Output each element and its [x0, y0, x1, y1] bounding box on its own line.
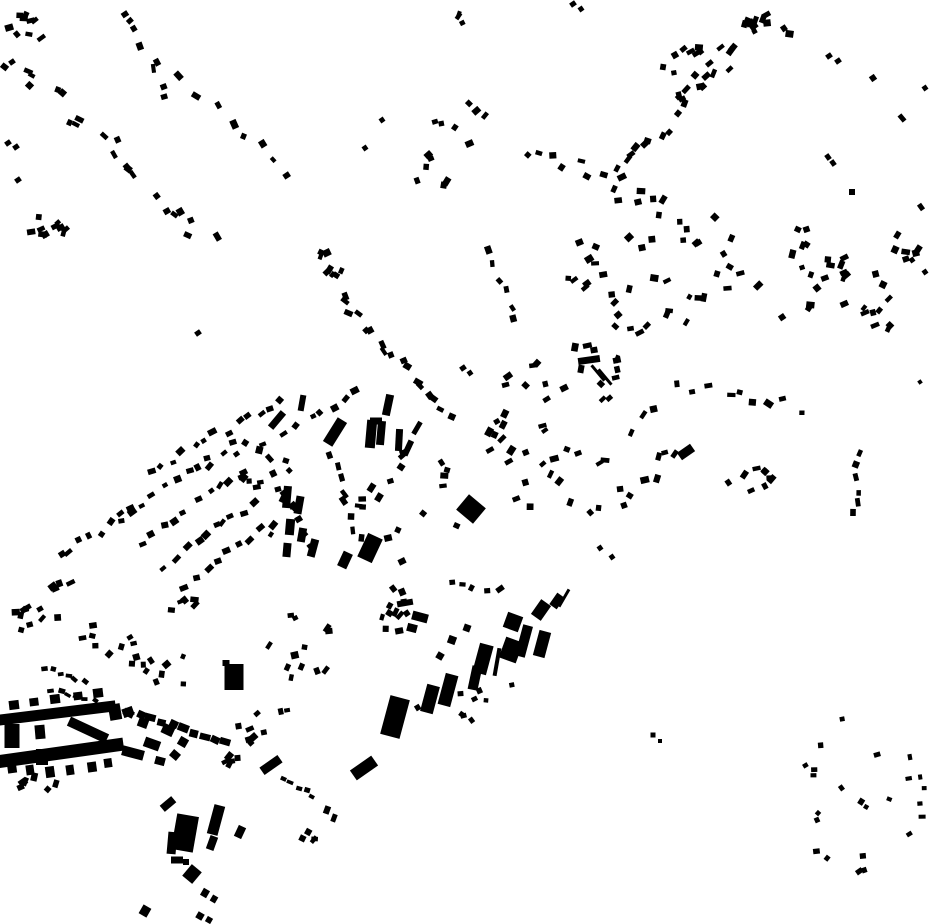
building-footprint	[614, 366, 621, 374]
building-footprint	[723, 286, 732, 291]
building-footprint	[282, 457, 289, 464]
building-footprint	[592, 243, 601, 251]
building-footprint	[665, 128, 673, 136]
building-footprint	[586, 509, 594, 517]
building-footprint	[191, 91, 201, 100]
building-footprint	[221, 546, 231, 555]
building-footprint	[870, 322, 880, 329]
building-footprint	[704, 383, 713, 389]
building-footprint	[467, 370, 474, 377]
building-footprint	[210, 894, 219, 903]
building-footprint	[435, 651, 445, 661]
building-footprint	[663, 277, 672, 284]
building-footprint	[180, 653, 186, 659]
building-footprint	[863, 804, 869, 810]
building-footprint	[681, 84, 691, 94]
building-footprint	[481, 111, 489, 120]
building-footprint	[922, 269, 929, 276]
building-footprint	[611, 322, 619, 330]
building-footprint	[557, 163, 566, 172]
building-footprint	[156, 463, 163, 470]
building-footprint	[181, 681, 187, 686]
building-footprint	[38, 231, 47, 238]
building-footprint	[716, 44, 725, 52]
building-footprint	[107, 517, 116, 526]
building-footprint	[484, 588, 490, 594]
building-footprint	[438, 458, 446, 466]
building-footprint	[463, 624, 472, 633]
building-footprint	[126, 17, 134, 25]
building-footprint	[642, 321, 651, 330]
building-footprint	[173, 70, 184, 81]
building-footprint	[720, 250, 728, 258]
building-footprint	[824, 256, 831, 263]
building-footprint	[549, 455, 559, 463]
building-footprint	[65, 764, 74, 775]
building-footprint	[471, 106, 481, 116]
building-footprint	[690, 71, 699, 80]
building-footprint	[457, 691, 463, 697]
building-footprint	[617, 486, 624, 493]
building-footprint	[547, 470, 554, 479]
building-footprint	[857, 797, 865, 805]
building-footprint	[265, 641, 273, 650]
building-footprint	[177, 722, 190, 733]
building-footprint	[637, 188, 646, 195]
building-footprint	[268, 520, 278, 531]
building-footprint	[286, 467, 293, 474]
building-footprint	[677, 444, 695, 461]
building-footprint	[917, 801, 923, 806]
building-footprint	[100, 131, 109, 140]
building-footprint	[451, 123, 459, 131]
building-footprint	[447, 412, 456, 421]
building-footprint	[459, 364, 467, 372]
building-footprint	[203, 455, 211, 462]
building-footprint	[179, 584, 189, 592]
building-footprint	[500, 409, 509, 419]
building-footprint	[563, 446, 571, 453]
building-footprint	[161, 659, 171, 669]
building-footprint	[25, 31, 33, 37]
building-footprint	[569, 0, 577, 8]
building-footprint	[0, 62, 9, 71]
building-footprint	[423, 164, 429, 171]
building-footprint	[571, 343, 579, 352]
building-footprint	[36, 749, 48, 765]
building-footprint	[917, 203, 925, 212]
building-footprint	[694, 295, 702, 301]
building-footprint	[736, 389, 743, 395]
building-footprint	[108, 703, 123, 721]
building-footprint	[187, 217, 195, 225]
building-footprint	[387, 478, 394, 485]
building-footprint	[386, 602, 394, 610]
building-footprint	[322, 248, 332, 258]
building-footprint	[542, 395, 551, 403]
building-footprint	[860, 853, 867, 859]
building-footprint	[806, 301, 815, 308]
building-footprint	[348, 513, 355, 520]
building-footprint	[394, 526, 401, 533]
building-footprint	[470, 678, 475, 684]
building-footprint	[47, 688, 54, 693]
building-footprint	[778, 313, 787, 321]
building-footprint	[385, 609, 394, 617]
building-footprint	[611, 375, 619, 381]
building-footprint	[258, 139, 267, 149]
building-footprint	[14, 176, 22, 184]
building-footprint	[374, 492, 384, 502]
building-footprint	[509, 682, 515, 688]
building-footprint	[596, 505, 602, 511]
building-footprint	[869, 309, 876, 316]
building-footprint	[325, 628, 333, 635]
building-footprint	[650, 195, 657, 202]
building-footprint	[653, 474, 661, 484]
building-footprint	[268, 410, 286, 430]
building-footprint	[574, 450, 582, 457]
building-footprint	[26, 621, 33, 628]
building-footprint	[559, 384, 569, 393]
building-footprint	[837, 260, 845, 270]
building-footprint	[761, 482, 769, 490]
building-footprint	[204, 563, 214, 573]
building-footprint	[130, 25, 138, 33]
building-footprint	[649, 405, 657, 413]
building-footprint	[161, 521, 169, 528]
building-footprint	[282, 171, 291, 179]
building-footprint	[49, 694, 60, 704]
building-footprint	[175, 446, 185, 456]
building-footprint	[810, 773, 816, 777]
building-footprint	[749, 399, 757, 406]
building-footprint	[674, 109, 682, 117]
building-footprint	[284, 663, 291, 671]
building-footprint	[411, 421, 422, 436]
building-footprint	[918, 774, 923, 780]
building-footprint	[565, 276, 571, 281]
building-footprint	[138, 503, 145, 509]
building-footprint	[811, 767, 817, 772]
building-footprint	[389, 584, 398, 593]
building-footprint	[665, 308, 673, 313]
building-footprint	[8, 58, 16, 66]
building-footprint	[193, 574, 201, 581]
building-footprint	[179, 509, 187, 516]
building-footprint	[907, 754, 912, 761]
building-footprint	[129, 661, 135, 667]
building-footprint	[338, 473, 345, 482]
building-footprint	[41, 666, 48, 671]
building-footprint	[74, 536, 82, 544]
building-footprint	[370, 418, 382, 425]
building-footprint	[533, 630, 551, 658]
building-footprint	[820, 274, 829, 282]
building-footprint	[235, 540, 243, 548]
building-footprint	[16, 12, 23, 18]
building-footprint	[207, 804, 225, 836]
building-footprint	[275, 396, 284, 405]
building-footprint	[210, 735, 221, 745]
building-footprint	[81, 678, 89, 686]
building-footprint	[139, 541, 147, 548]
building-footprint	[265, 453, 274, 463]
building-footprint	[229, 119, 239, 130]
building-footprint	[736, 270, 745, 277]
building-footprint	[29, 697, 39, 706]
building-footprint	[67, 717, 109, 744]
building-footprint	[420, 684, 440, 714]
building-footprint	[524, 151, 532, 159]
building-footprint	[245, 725, 254, 733]
building-footprint	[853, 473, 860, 482]
building-footprint	[170, 460, 177, 466]
building-footprint	[725, 263, 734, 271]
building-footprint	[259, 755, 282, 775]
building-footprint	[256, 523, 266, 533]
building-footprint	[468, 584, 475, 592]
map-viewport	[0, 0, 930, 924]
building-footprint	[785, 30, 794, 38]
building-footprint	[147, 656, 155, 665]
building-footprint	[153, 192, 161, 200]
building-footprint	[259, 441, 267, 447]
building-footprint	[34, 725, 45, 740]
building-footprint	[98, 530, 106, 538]
building-footprint	[362, 145, 369, 152]
building-footprint	[869, 74, 877, 82]
building-footprint	[130, 641, 137, 647]
building-footprint	[724, 479, 732, 487]
building-footprint	[379, 117, 386, 124]
building-footprint	[298, 834, 306, 842]
building-footprint	[358, 534, 364, 542]
building-footprint	[499, 420, 508, 430]
building-footprint	[301, 644, 307, 650]
building-footprint	[684, 226, 690, 233]
building-footprint	[384, 534, 393, 542]
building-footprint	[493, 648, 502, 676]
building-footprint	[893, 231, 901, 240]
building-footprint	[626, 492, 634, 500]
building-footprint	[628, 429, 635, 437]
building-footprint	[453, 522, 461, 529]
building-footprint	[25, 81, 34, 90]
building-footprint	[216, 481, 224, 490]
building-footprint	[590, 346, 598, 353]
building-footprint	[103, 758, 112, 768]
building-footprint	[799, 265, 805, 271]
building-footprint	[341, 394, 350, 403]
building-footprint	[350, 526, 355, 534]
building-footprint	[406, 623, 418, 633]
building-footprint	[270, 156, 277, 163]
building-footprint	[199, 732, 211, 741]
building-footprint-map	[0, 0, 930, 924]
building-footprint	[447, 635, 457, 645]
building-footprint	[214, 101, 222, 109]
building-footprint	[484, 698, 489, 703]
building-footprint	[266, 405, 274, 412]
building-footprint	[689, 389, 696, 395]
building-footprint	[160, 93, 168, 100]
building-footprint	[496, 277, 504, 285]
building-footprint	[58, 672, 64, 676]
building-footprint	[763, 398, 774, 409]
building-footprint	[153, 678, 160, 686]
building-footprint	[829, 159, 837, 167]
building-footprint	[323, 805, 331, 815]
building-footprint	[814, 817, 821, 824]
building-footprint	[8, 700, 19, 710]
building-footprint	[121, 10, 130, 18]
building-footprint	[288, 674, 294, 681]
building-footprint	[512, 495, 521, 502]
building-footprint	[803, 226, 811, 234]
building-footprint	[686, 294, 692, 301]
building-footprint	[65, 674, 72, 679]
building-footprint	[658, 739, 662, 743]
building-footprint	[875, 306, 883, 314]
building-footprint	[234, 755, 240, 761]
building-footprint	[219, 737, 231, 747]
building-footprint	[753, 280, 764, 291]
building-footprint	[110, 150, 118, 159]
building-footprint	[226, 513, 234, 520]
building-footprint	[599, 395, 607, 403]
building-footprint	[359, 504, 366, 510]
building-footprint	[66, 119, 73, 126]
building-footprint	[200, 438, 207, 445]
building-footprint	[291, 421, 300, 430]
building-footprint	[860, 309, 870, 316]
building-footprint	[459, 20, 466, 26]
building-footprint	[651, 733, 656, 738]
building-footprint	[338, 267, 345, 274]
building-footprint	[78, 635, 86, 641]
building-footprint	[92, 643, 98, 649]
building-footprint	[468, 717, 475, 724]
building-footprint	[449, 579, 455, 585]
building-footprint	[146, 530, 155, 539]
building-footprint	[229, 439, 237, 446]
building-footprint	[849, 189, 855, 195]
building-footprint	[253, 710, 261, 718]
building-footprint	[142, 667, 149, 675]
building-footprint	[752, 465, 761, 471]
building-footprint	[506, 445, 517, 456]
building-footprint	[852, 460, 860, 469]
building-footprint	[597, 545, 604, 552]
building-footprint	[158, 670, 164, 678]
building-footprint	[761, 467, 770, 476]
building-footprint	[395, 429, 403, 451]
building-footprint	[484, 245, 493, 255]
building-footprint	[213, 231, 222, 241]
building-footprint	[326, 451, 334, 459]
building-footprint	[12, 143, 20, 151]
building-footprint	[779, 396, 787, 402]
building-footprint	[439, 483, 447, 488]
building-footprint	[167, 832, 178, 855]
building-footprint	[529, 363, 537, 369]
building-footprint	[818, 742, 824, 748]
building-footprint	[7, 762, 17, 773]
building-footprint	[527, 503, 534, 510]
building-footprint	[383, 626, 389, 632]
building-footprint	[638, 244, 646, 252]
building-footprint	[136, 42, 145, 51]
building-footprint	[634, 198, 642, 206]
building-footprint	[58, 688, 66, 695]
building-footprint	[531, 599, 551, 621]
building-footprint	[304, 828, 312, 837]
building-footprint	[147, 491, 156, 499]
building-footprint	[172, 554, 182, 564]
page-root: { "meta": { "title": "building-footprint…	[0, 0, 930, 924]
building-footprint	[656, 211, 662, 218]
building-footprint	[240, 510, 249, 517]
building-footprint	[193, 441, 200, 448]
building-footprint	[566, 498, 574, 507]
building-footprint	[260, 729, 267, 735]
building-footprint	[902, 255, 910, 263]
building-footprint	[919, 815, 926, 819]
building-footprint	[141, 662, 146, 668]
building-footprint	[286, 779, 294, 785]
building-footprint	[850, 509, 856, 516]
building-footprint	[177, 736, 189, 748]
building-footprint	[683, 318, 690, 326]
building-footprint	[220, 449, 228, 456]
building-footprint	[493, 418, 500, 425]
building-footprint	[727, 393, 735, 398]
building-footprint	[282, 543, 291, 558]
building-footprint	[160, 83, 168, 90]
building-footprint	[539, 460, 547, 467]
building-footprint	[387, 351, 394, 359]
building-footprint	[650, 274, 659, 282]
building-footprint	[279, 430, 288, 438]
building-footprint	[4, 23, 14, 31]
building-footprint	[169, 749, 181, 761]
building-footprint	[661, 450, 668, 456]
building-footprint	[200, 888, 210, 898]
building-footprint	[766, 475, 773, 480]
building-footprint	[705, 59, 714, 68]
building-footprint	[901, 248, 910, 255]
building-footprint	[614, 197, 622, 204]
building-footprint	[635, 328, 645, 336]
building-footprint	[825, 52, 833, 60]
building-footprint	[367, 482, 377, 493]
building-footprint	[485, 446, 494, 454]
building-footprint	[207, 427, 218, 436]
building-footprint	[105, 649, 114, 658]
building-footprint	[284, 708, 290, 713]
building-footprint	[788, 249, 796, 259]
building-footprint	[599, 171, 608, 179]
building-footprint	[246, 478, 251, 483]
building-footprint	[258, 410, 266, 418]
building-footprint	[193, 463, 201, 472]
building-footprint	[725, 65, 733, 73]
building-footprint	[397, 557, 406, 566]
building-footprint	[503, 612, 524, 633]
building-footprint	[826, 262, 835, 269]
building-footprint	[710, 212, 720, 222]
